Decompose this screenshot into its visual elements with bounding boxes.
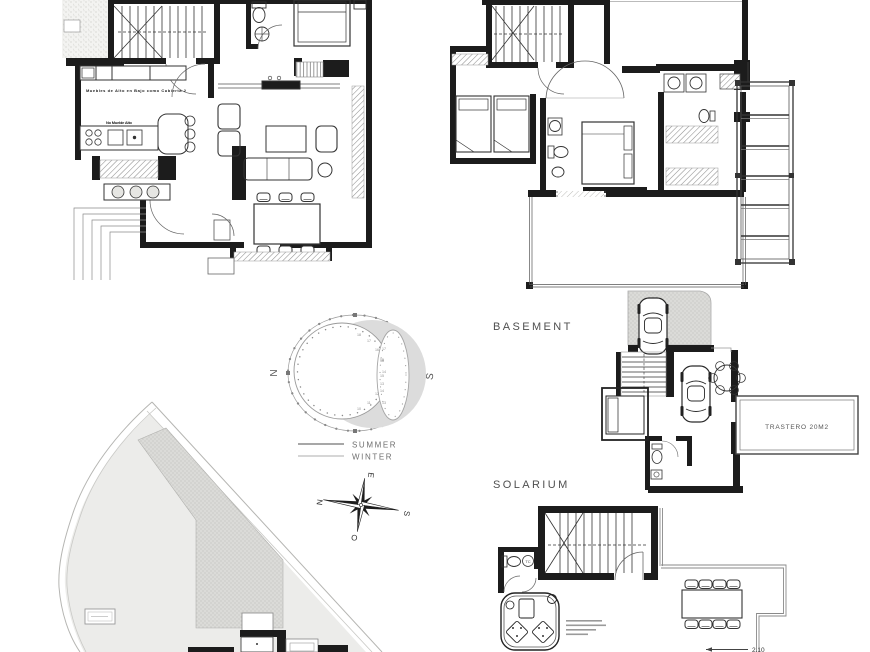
wardrobe-hatch — [452, 54, 488, 65]
plot-badge — [85, 609, 115, 624]
grill-icon — [104, 184, 170, 200]
fireplace-icon — [262, 81, 300, 89]
bathroom-icons — [548, 118, 568, 177]
sun-south-label: S — [425, 372, 437, 381]
wardrobe-hatch — [666, 168, 718, 185]
sun-path-diagram: 18 17 16 15 14 13 12 11 10 17 16 15 14 1… — [269, 313, 437, 462]
first-floor-plan — [450, 0, 795, 289]
kitchen-annotation-2: No Mueble Alto — [106, 120, 133, 125]
svg-text:18: 18 — [357, 333, 361, 337]
toilet-icon — [508, 557, 521, 567]
sun-legend: SUMMER WINTER — [298, 441, 397, 462]
compass-north-label: N — [315, 499, 325, 506]
svg-text:11: 11 — [367, 401, 371, 405]
basement-plan: TRASTERO 20M2 — [602, 291, 858, 493]
bed-icon — [606, 396, 644, 434]
svg-text:13: 13 — [380, 382, 384, 386]
svg-text:10: 10 — [357, 407, 361, 411]
contour-lines — [74, 208, 146, 280]
basement-label: BASEMENT — [493, 321, 573, 333]
floorplan-sheet: Muebles de Alto en Bajo como Cubierta 2 … — [0, 0, 870, 652]
svg-text:16: 16 — [380, 359, 384, 363]
staircase-icon — [492, 6, 564, 94]
storage-room: TRASTERO 20M2 — [736, 396, 858, 454]
side-table-icon — [318, 163, 332, 177]
basement-bathroom — [651, 441, 678, 479]
summer-label: SUMMER — [352, 441, 397, 450]
jacuzzi-note-lines — [566, 620, 606, 635]
bathroom-icons — [252, 2, 282, 49]
window-hatch — [352, 86, 364, 198]
dining-set-icon — [682, 580, 742, 629]
svg-text:15: 15 — [380, 374, 384, 378]
solarium-label: SOLARIUM — [493, 479, 570, 491]
compass-west-label: O — [351, 533, 358, 543]
wardrobe-hatch — [666, 126, 718, 143]
site-plan — [59, 402, 382, 652]
water-heater-label: TC — [525, 559, 530, 564]
svg-text:12: 12 — [375, 392, 379, 396]
ground-floor-plan: Muebles de Alto en Bajo como Cubierta 2 … — [62, 0, 372, 280]
twin-beds-icon — [456, 96, 529, 152]
wardrobe-icon — [296, 62, 323, 77]
basement-bedroom — [602, 388, 648, 440]
staircase-icon — [114, 6, 208, 94]
svg-text:16: 16 — [375, 348, 379, 352]
terrace-outline — [530, 191, 746, 287]
summer-circle — [294, 323, 390, 419]
storage-label: TRASTERO 20M2 — [765, 424, 829, 431]
armchair-icon — [316, 126, 337, 152]
compass-east-label: E — [366, 472, 376, 479]
svg-text:17: 17 — [367, 339, 371, 343]
kitchen-icons — [80, 66, 195, 154]
winter-label: WINTER — [352, 453, 393, 462]
staircase-icon — [621, 352, 666, 396]
compass-south-label: S — [402, 510, 412, 517]
svg-text:14: 14 — [380, 389, 384, 393]
master-bed-icon — [582, 122, 634, 184]
stair-enclosure — [538, 506, 658, 580]
coffee-table-icon — [266, 126, 306, 152]
jacuzzi-icon — [501, 593, 559, 650]
floorplan-drawing: Muebles de Alto en Bajo como Cubierta 2 … — [0, 0, 870, 652]
dimension-marker: 2.10 — [706, 647, 765, 652]
round-table-icon — [709, 362, 746, 395]
compass-rose: N S E O — [310, 465, 416, 549]
solarium-wc: TC — [498, 547, 540, 593]
svg-text:17: 17 — [382, 347, 386, 351]
sun-north-label: N — [269, 369, 280, 376]
solarium-plan: TC 2.10 — [498, 506, 786, 652]
dimension-text: 2.10 — [752, 647, 765, 652]
upper-bathroom-icons — [664, 74, 740, 123]
svg-text:13: 13 — [382, 401, 386, 405]
sofa-icon — [244, 158, 312, 180]
first-floor-walls — [450, 0, 750, 289]
kitchen-annotation: Muebles de Alto en Bajo como Cubierta 2 — [86, 88, 187, 93]
car-icon — [638, 298, 669, 354]
sofa-icon — [218, 104, 240, 129]
car-icon — [681, 366, 712, 422]
